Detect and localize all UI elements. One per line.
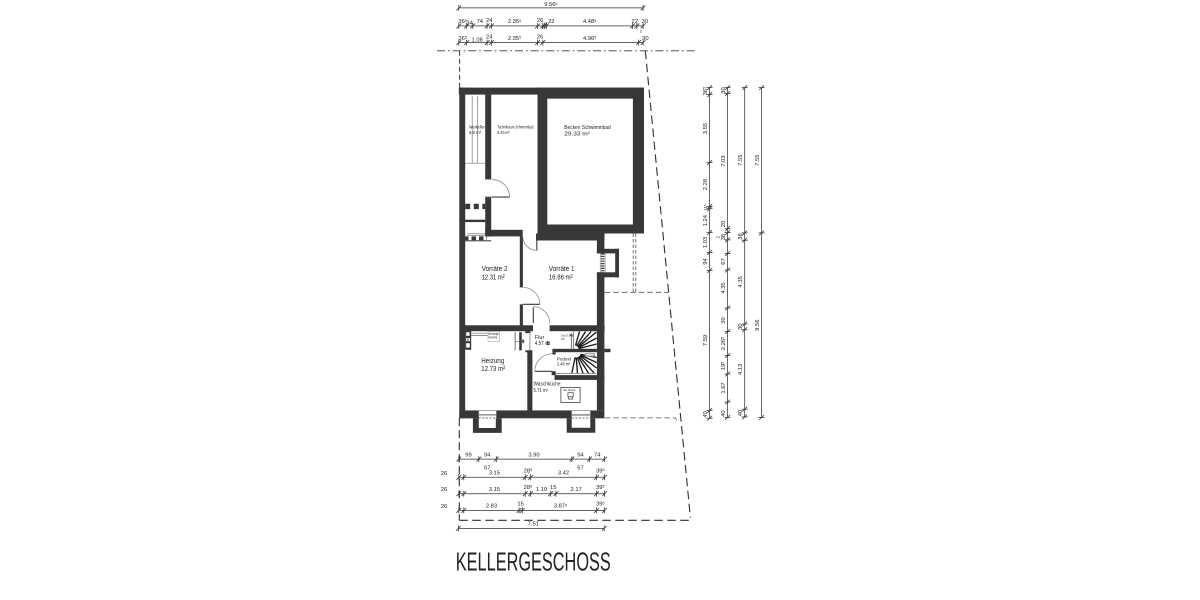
svg-text:2.28: 2.28 xyxy=(703,179,709,190)
svg-text:1.10: 1.10 xyxy=(536,487,547,493)
svg-text:Becken Schwimmbad: Becken Schwimmbad xyxy=(564,125,610,131)
svg-text:12.31 m²: 12.31 m² xyxy=(482,272,505,281)
svg-text:38: 38 xyxy=(721,234,727,240)
svg-text:30: 30 xyxy=(738,324,744,330)
svg-text:2.83: 2.83 xyxy=(486,504,497,510)
svg-text:Waschküche: Waschküche xyxy=(534,382,561,388)
svg-text:38: 38 xyxy=(738,233,744,239)
svg-text:26: 26 xyxy=(441,471,447,477)
svg-text:94: 94 xyxy=(577,452,584,458)
svg-text:Wa.-Masch.: Wa.-Masch. xyxy=(563,388,576,392)
svg-text:30: 30 xyxy=(642,36,648,42)
svg-text:2.17: 2.17 xyxy=(571,487,582,493)
svg-text:1.03: 1.03 xyxy=(703,237,709,248)
svg-text:3.875: 3.875 xyxy=(554,504,567,510)
svg-text:16x17.6/26: 16x17.6/26 xyxy=(586,355,595,357)
svg-text:3.55: 3.55 xyxy=(703,123,709,134)
svg-text:1.08: 1.08 xyxy=(472,37,483,43)
svg-text:KELLERGESCHOSS: KELLERGESCHOSS xyxy=(456,548,611,577)
svg-text:7.51: 7.51 xyxy=(528,522,539,528)
svg-text:12.73 m²: 12.73 m² xyxy=(481,364,505,373)
svg-text:30: 30 xyxy=(642,19,648,25)
svg-text:1.24: 1.24 xyxy=(703,214,709,226)
svg-text:2.265: 2.265 xyxy=(721,337,727,350)
svg-text:94: 94 xyxy=(484,452,491,458)
svg-text:40: 40 xyxy=(721,410,727,416)
svg-text:7.55: 7.55 xyxy=(738,155,744,166)
svg-text:3.90: 3.90 xyxy=(528,452,539,458)
svg-text:9.565: 9.565 xyxy=(544,2,557,8)
svg-text:3.42: 3.42 xyxy=(558,471,569,477)
svg-text:15: 15 xyxy=(517,502,523,508)
svg-text:67: 67 xyxy=(577,466,583,472)
svg-text:26: 26 xyxy=(561,337,565,341)
svg-text:Fernwärme: Fernwärme xyxy=(489,336,498,340)
svg-text:6.8 m²: 6.8 m² xyxy=(469,130,481,135)
svg-text:3.15: 3.15 xyxy=(489,487,500,493)
svg-text:26: 26 xyxy=(537,18,543,24)
svg-text:16.86 m²: 16.86 m² xyxy=(549,272,573,281)
svg-text:7.55: 7.55 xyxy=(755,155,761,166)
svg-text:99: 99 xyxy=(465,452,471,458)
svg-text:7.59: 7.59 xyxy=(703,335,709,346)
svg-text:30: 30 xyxy=(721,87,727,93)
svg-text:7.03: 7.03 xyxy=(721,155,727,166)
svg-text:5.71 m²: 5.71 m² xyxy=(534,388,549,394)
svg-text:24: 24 xyxy=(486,35,493,41)
svg-text:4.35: 4.35 xyxy=(721,282,727,293)
svg-text:2.355: 2.355 xyxy=(508,19,521,25)
svg-text:26: 26 xyxy=(537,35,543,41)
svg-text:9.40 m²: 9.40 m² xyxy=(497,130,510,135)
svg-text:29.33 m²: 29.33 m² xyxy=(564,131,590,137)
svg-text:34: 34 xyxy=(466,21,473,27)
svg-text:40: 40 xyxy=(703,411,709,417)
svg-text:67: 67 xyxy=(721,258,727,264)
svg-text:1.67: 1.67 xyxy=(721,382,727,393)
svg-text:4.35: 4.35 xyxy=(738,276,744,287)
svg-text:74: 74 xyxy=(594,452,601,458)
svg-text:30: 30 xyxy=(721,317,727,323)
svg-text:26: 26 xyxy=(441,487,447,493)
svg-text:3.15: 3.15 xyxy=(489,471,500,477)
svg-text:22: 22 xyxy=(631,19,637,25)
svg-text:24: 24 xyxy=(486,18,493,24)
svg-text:74: 74 xyxy=(477,19,484,25)
svg-text:2.355: 2.355 xyxy=(508,36,521,42)
svg-text:22: 22 xyxy=(548,19,554,25)
svg-text:9.56: 9.56 xyxy=(755,320,761,331)
svg-text:15: 15 xyxy=(550,485,556,491)
svg-text:2.48 m²: 2.48 m² xyxy=(557,362,571,367)
svg-text:4.13: 4.13 xyxy=(738,364,744,375)
svg-text:20: 20 xyxy=(721,221,727,227)
svg-text:40: 40 xyxy=(738,410,744,416)
svg-text:94: 94 xyxy=(703,258,709,265)
svg-text:Flur: Flur xyxy=(535,335,545,341)
svg-text:26: 26 xyxy=(441,504,447,510)
